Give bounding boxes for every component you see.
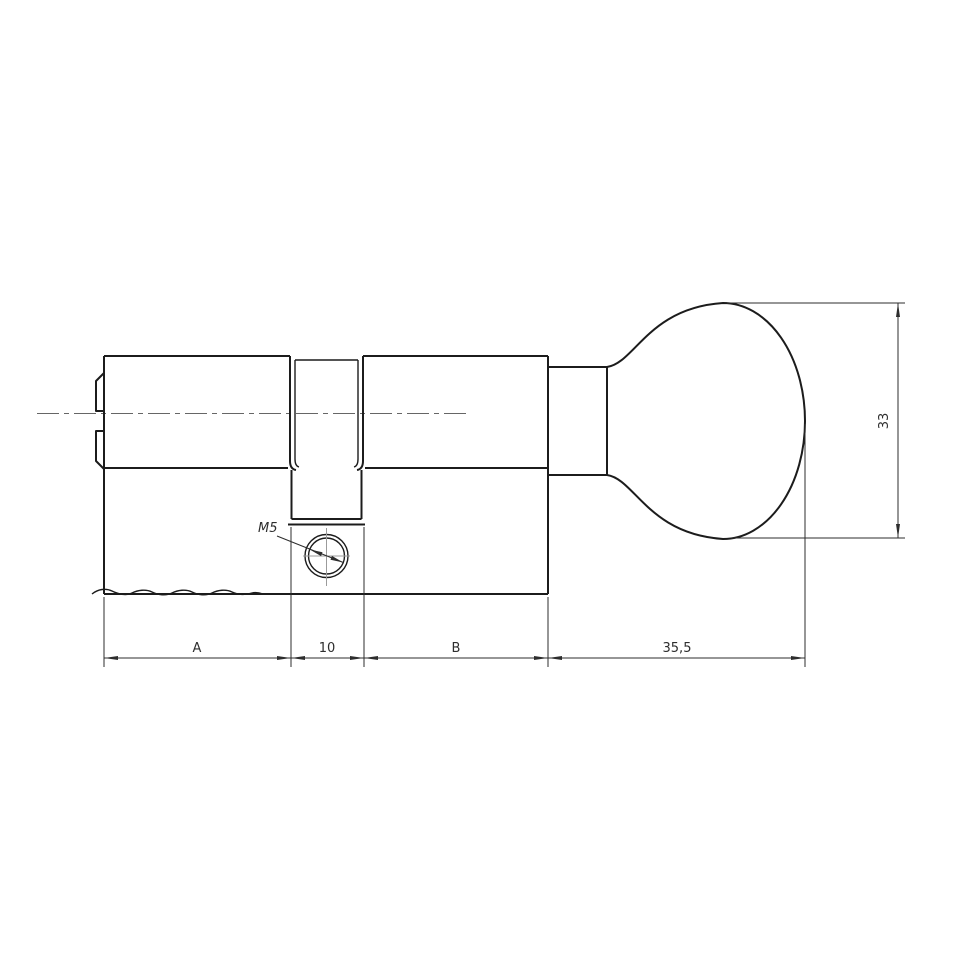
technical-drawing: M5 A 10 B 35,5 33 — [0, 0, 970, 970]
dim-label-33: 33 — [877, 413, 892, 430]
thread-label: M5 — [258, 521, 278, 536]
dim-label-10: 10 — [319, 641, 336, 656]
callout-arrowhead — [331, 556, 344, 563]
drawing-canvas: M5 A 10 B 35,5 33 — [0, 0, 970, 970]
cylinder-body-outline — [92, 356, 548, 595]
cam-slot — [288, 356, 365, 525]
dimension-vertical: 33 — [727, 303, 905, 538]
keyway-tabs — [96, 373, 104, 469]
thumbturn-knob — [607, 303, 805, 539]
knob-neck — [548, 367, 607, 475]
upper-tab — [96, 373, 104, 411]
lower-tab — [96, 431, 104, 469]
dimension-chain-horizontal: A 10 B 35,5 — [104, 424, 805, 667]
screw-hole — [303, 528, 350, 586]
callout-arrowhead — [310, 550, 323, 557]
dim-label-35-5: 35,5 — [663, 641, 692, 656]
dim-label-a: A — [193, 641, 202, 656]
dim-label-b: B — [452, 641, 461, 656]
